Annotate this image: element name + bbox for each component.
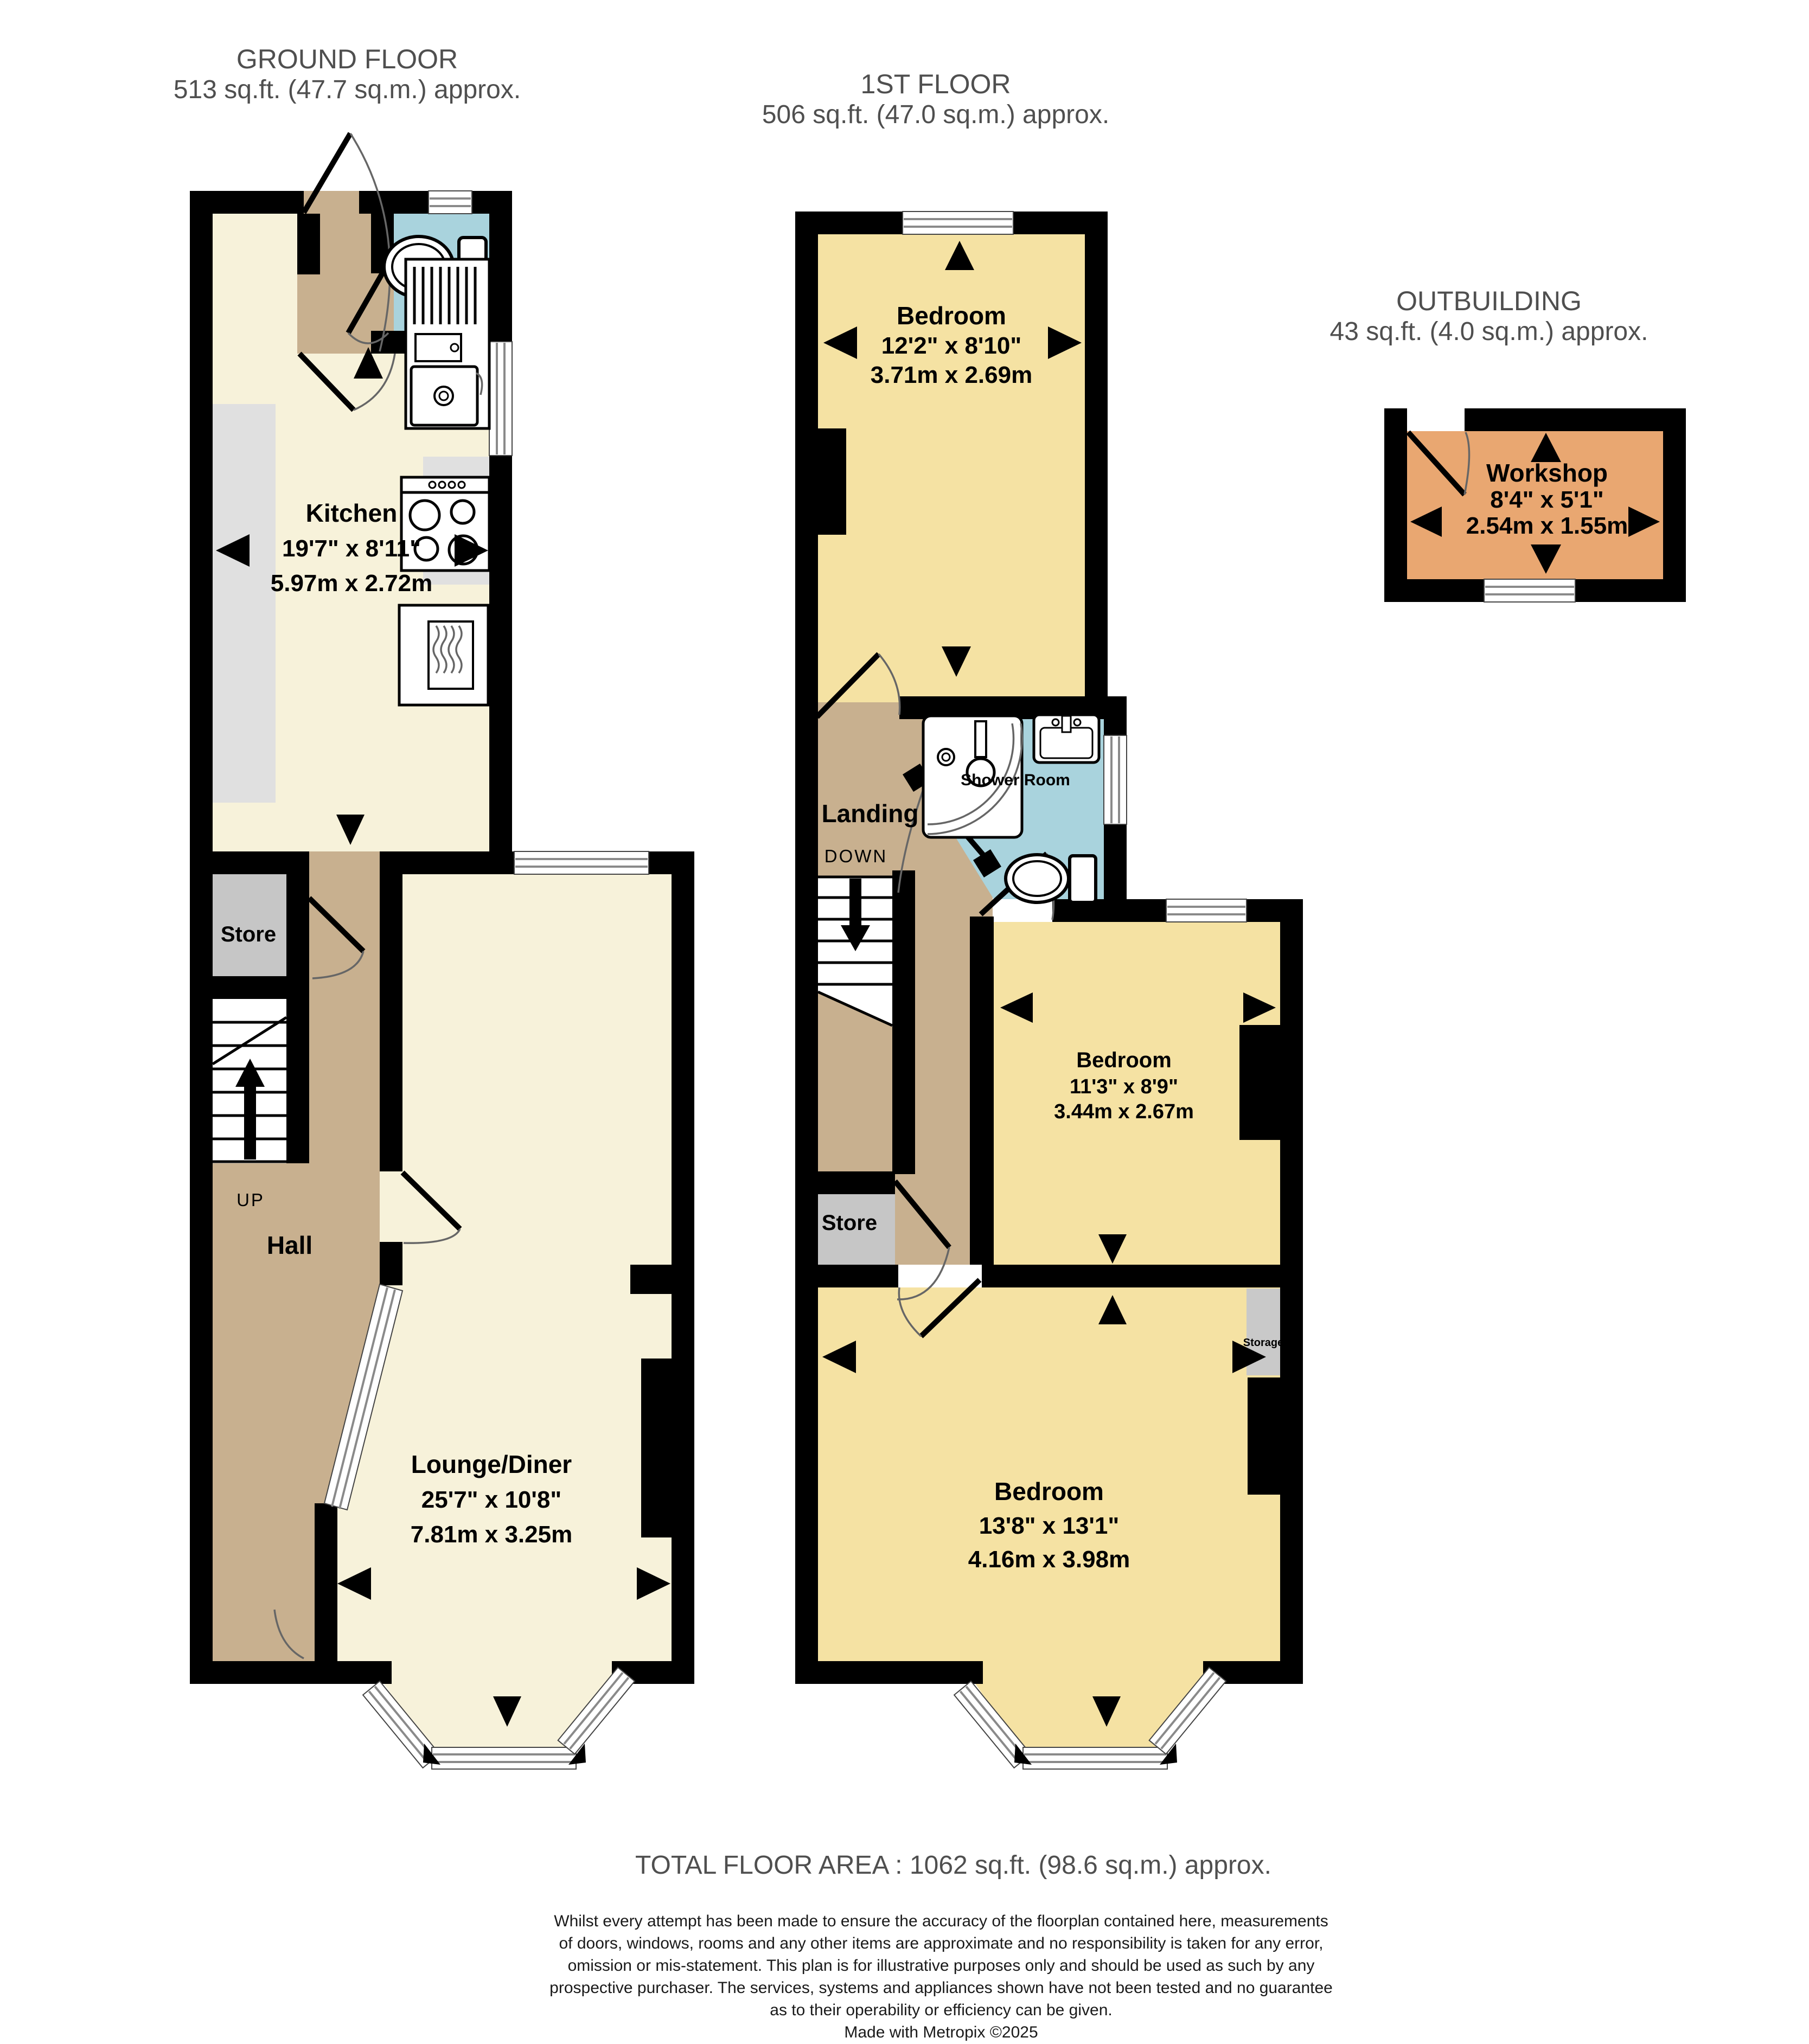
bedroom2-dims-m: 3.44m x 2.67m — [1054, 1100, 1194, 1123]
hall-label: Hall — [267, 1231, 312, 1259]
bedroom1-label: Bedroom — [897, 302, 1006, 330]
up-label: UP — [236, 1190, 265, 1210]
window-workshop — [1484, 579, 1575, 602]
first-floor-plan: Bedroom 12'2" x 8'10" 3.71m x 2.69m Show… — [795, 212, 1303, 1769]
window-bedroom1-top — [903, 212, 1013, 234]
bedroom3-dims-m: 4.16m x 3.98m — [968, 1546, 1130, 1573]
floorplan-page: GROUND FLOOR 513 sq.ft. (47.7 sq.m.) app… — [0, 0, 1809, 2044]
landing-label: Landing — [822, 799, 919, 828]
heater-icon — [399, 605, 488, 705]
kitchen-dims-ft: 19'7" x 8'11" — [282, 535, 421, 562]
basin-icon — [1034, 715, 1099, 763]
kitchen-counter-left — [213, 404, 276, 803]
bedroom3-room — [818, 1287, 1280, 1661]
down-arrow — [849, 879, 861, 928]
down-label: DOWN — [824, 846, 887, 866]
kitchen-sink-icon — [406, 259, 489, 428]
floorplan-canvas: Kitchen 19'7" x 8'11" 5.97m x 2.72m Stor… — [0, 0, 1809, 2044]
window-kitchen-right — [489, 342, 512, 456]
lounge-label: Lounge/Diner — [411, 1450, 572, 1478]
shower-room-label: Shower Room — [961, 771, 1070, 789]
storage-label: Storage — [1243, 1337, 1283, 1349]
up-arrow — [244, 1084, 256, 1159]
window-bedroom2-top — [1166, 899, 1247, 922]
bedroom1-dims-m: 3.71m x 2.69m — [871, 362, 1032, 388]
disclaimer: Whilst every attempt has been made to en… — [399, 1910, 1484, 2043]
total-floor-area: TOTAL FLOOR AREA : 1062 sq.ft. (98.6 sq.… — [434, 1850, 1473, 1880]
toilet-icon-first — [1006, 855, 1096, 902]
store-label: Store — [221, 922, 276, 946]
outbuilding-plan: Workshop 8'4" x 5'1" 2.54m x 1.55m — [1384, 408, 1686, 602]
disclaimer-line: omission or mis-statement. This plan is … — [399, 1955, 1484, 1977]
window-lounge-top — [514, 851, 649, 874]
first-store-label: Store — [822, 1211, 877, 1235]
window-shower-right — [1104, 735, 1127, 824]
disclaimer-line: of doors, windows, rooms and any other i… — [399, 1932, 1484, 1955]
workshop-label: Workshop — [1486, 459, 1608, 487]
workshop-dims-m: 2.54m x 1.55m — [1466, 512, 1628, 539]
bedroom1-dims-ft: 12'2" x 8'10" — [881, 332, 1021, 359]
metropix-credit: Made with Metropix ©2025 — [399, 2021, 1484, 2043]
ground-floor-plan: Kitchen 19'7" x 8'11" 5.97m x 2.72m Stor… — [190, 133, 694, 1769]
disclaimer-line: prospective purchaser. The services, sys… — [399, 1977, 1484, 1999]
bedroom3-label: Bedroom — [994, 1477, 1104, 1505]
workshop-dims-ft: 8'4" x 5'1" — [1490, 486, 1603, 513]
bedroom3-dims-ft: 13'8" x 13'1" — [979, 1513, 1119, 1539]
lounge-dims-ft: 25'7" x 10'8" — [421, 1486, 561, 1513]
bay-window-front — [432, 1747, 576, 1769]
kitchen-label: Kitchen — [306, 499, 398, 527]
bedroom2-dims-ft: 11'3" x 8'9" — [1070, 1075, 1178, 1098]
bedroom2-label: Bedroom — [1076, 1048, 1172, 1072]
lounge-dims-m: 7.81m x 3.25m — [411, 1521, 572, 1548]
disclaimer-line: as to their operability or efficiency ca… — [399, 1999, 1484, 2021]
kitchen-dims-m: 5.97m x 2.72m — [271, 570, 432, 597]
disclaimer-line: Whilst every attempt has been made to en… — [399, 1910, 1484, 1932]
window-wc-top — [429, 191, 472, 214]
bay-window-front-1f — [1023, 1747, 1167, 1769]
